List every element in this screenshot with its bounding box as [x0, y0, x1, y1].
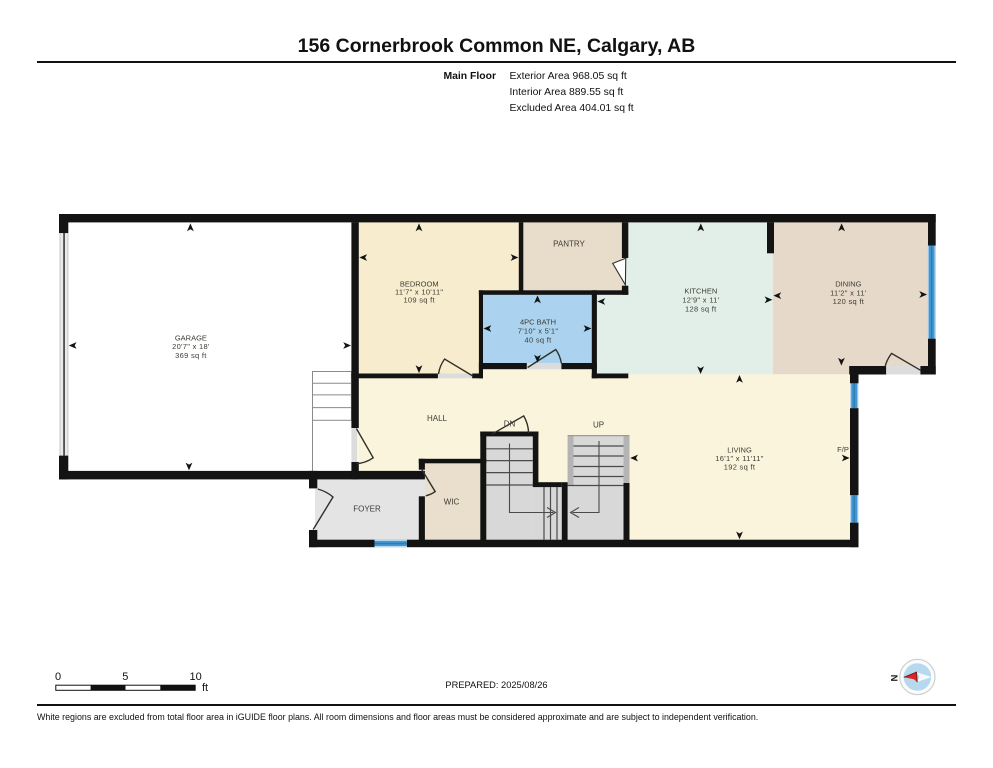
svg-text:DINING: DINING [835, 280, 861, 289]
svg-text:KITCHEN: KITCHEN [684, 286, 717, 295]
svg-text:12'9" x 11': 12'9" x 11' [682, 295, 719, 304]
svg-text:11'2" x 11': 11'2" x 11' [830, 288, 867, 297]
svg-text:N: N [890, 674, 901, 681]
svg-text:FOYER: FOYER [353, 505, 381, 514]
svg-text:192 sq ft: 192 sq ft [724, 463, 756, 472]
svg-text:GARAGE: GARAGE [175, 333, 207, 342]
svg-text:20'7" x 18': 20'7" x 18' [172, 342, 210, 351]
svg-text:40 sq ft: 40 sq ft [525, 336, 553, 345]
svg-text:PANTRY: PANTRY [553, 240, 585, 249]
svg-text:HALL: HALL [427, 414, 448, 423]
svg-text:109 sq ft: 109 sq ft [403, 296, 435, 305]
svg-text:F/P: F/P [837, 445, 849, 454]
svg-text:369 sq ft: 369 sq ft [175, 351, 207, 360]
svg-text:4PC BATH: 4PC BATH [520, 318, 556, 327]
svg-text:DN: DN [504, 420, 516, 429]
svg-text:UP: UP [593, 421, 604, 430]
svg-text:WIC: WIC [444, 498, 460, 507]
svg-text:120 sq ft: 120 sq ft [833, 297, 865, 306]
svg-text:7'10" x 5'1": 7'10" x 5'1" [518, 327, 559, 336]
svg-text:128 sq ft: 128 sq ft [685, 304, 717, 313]
